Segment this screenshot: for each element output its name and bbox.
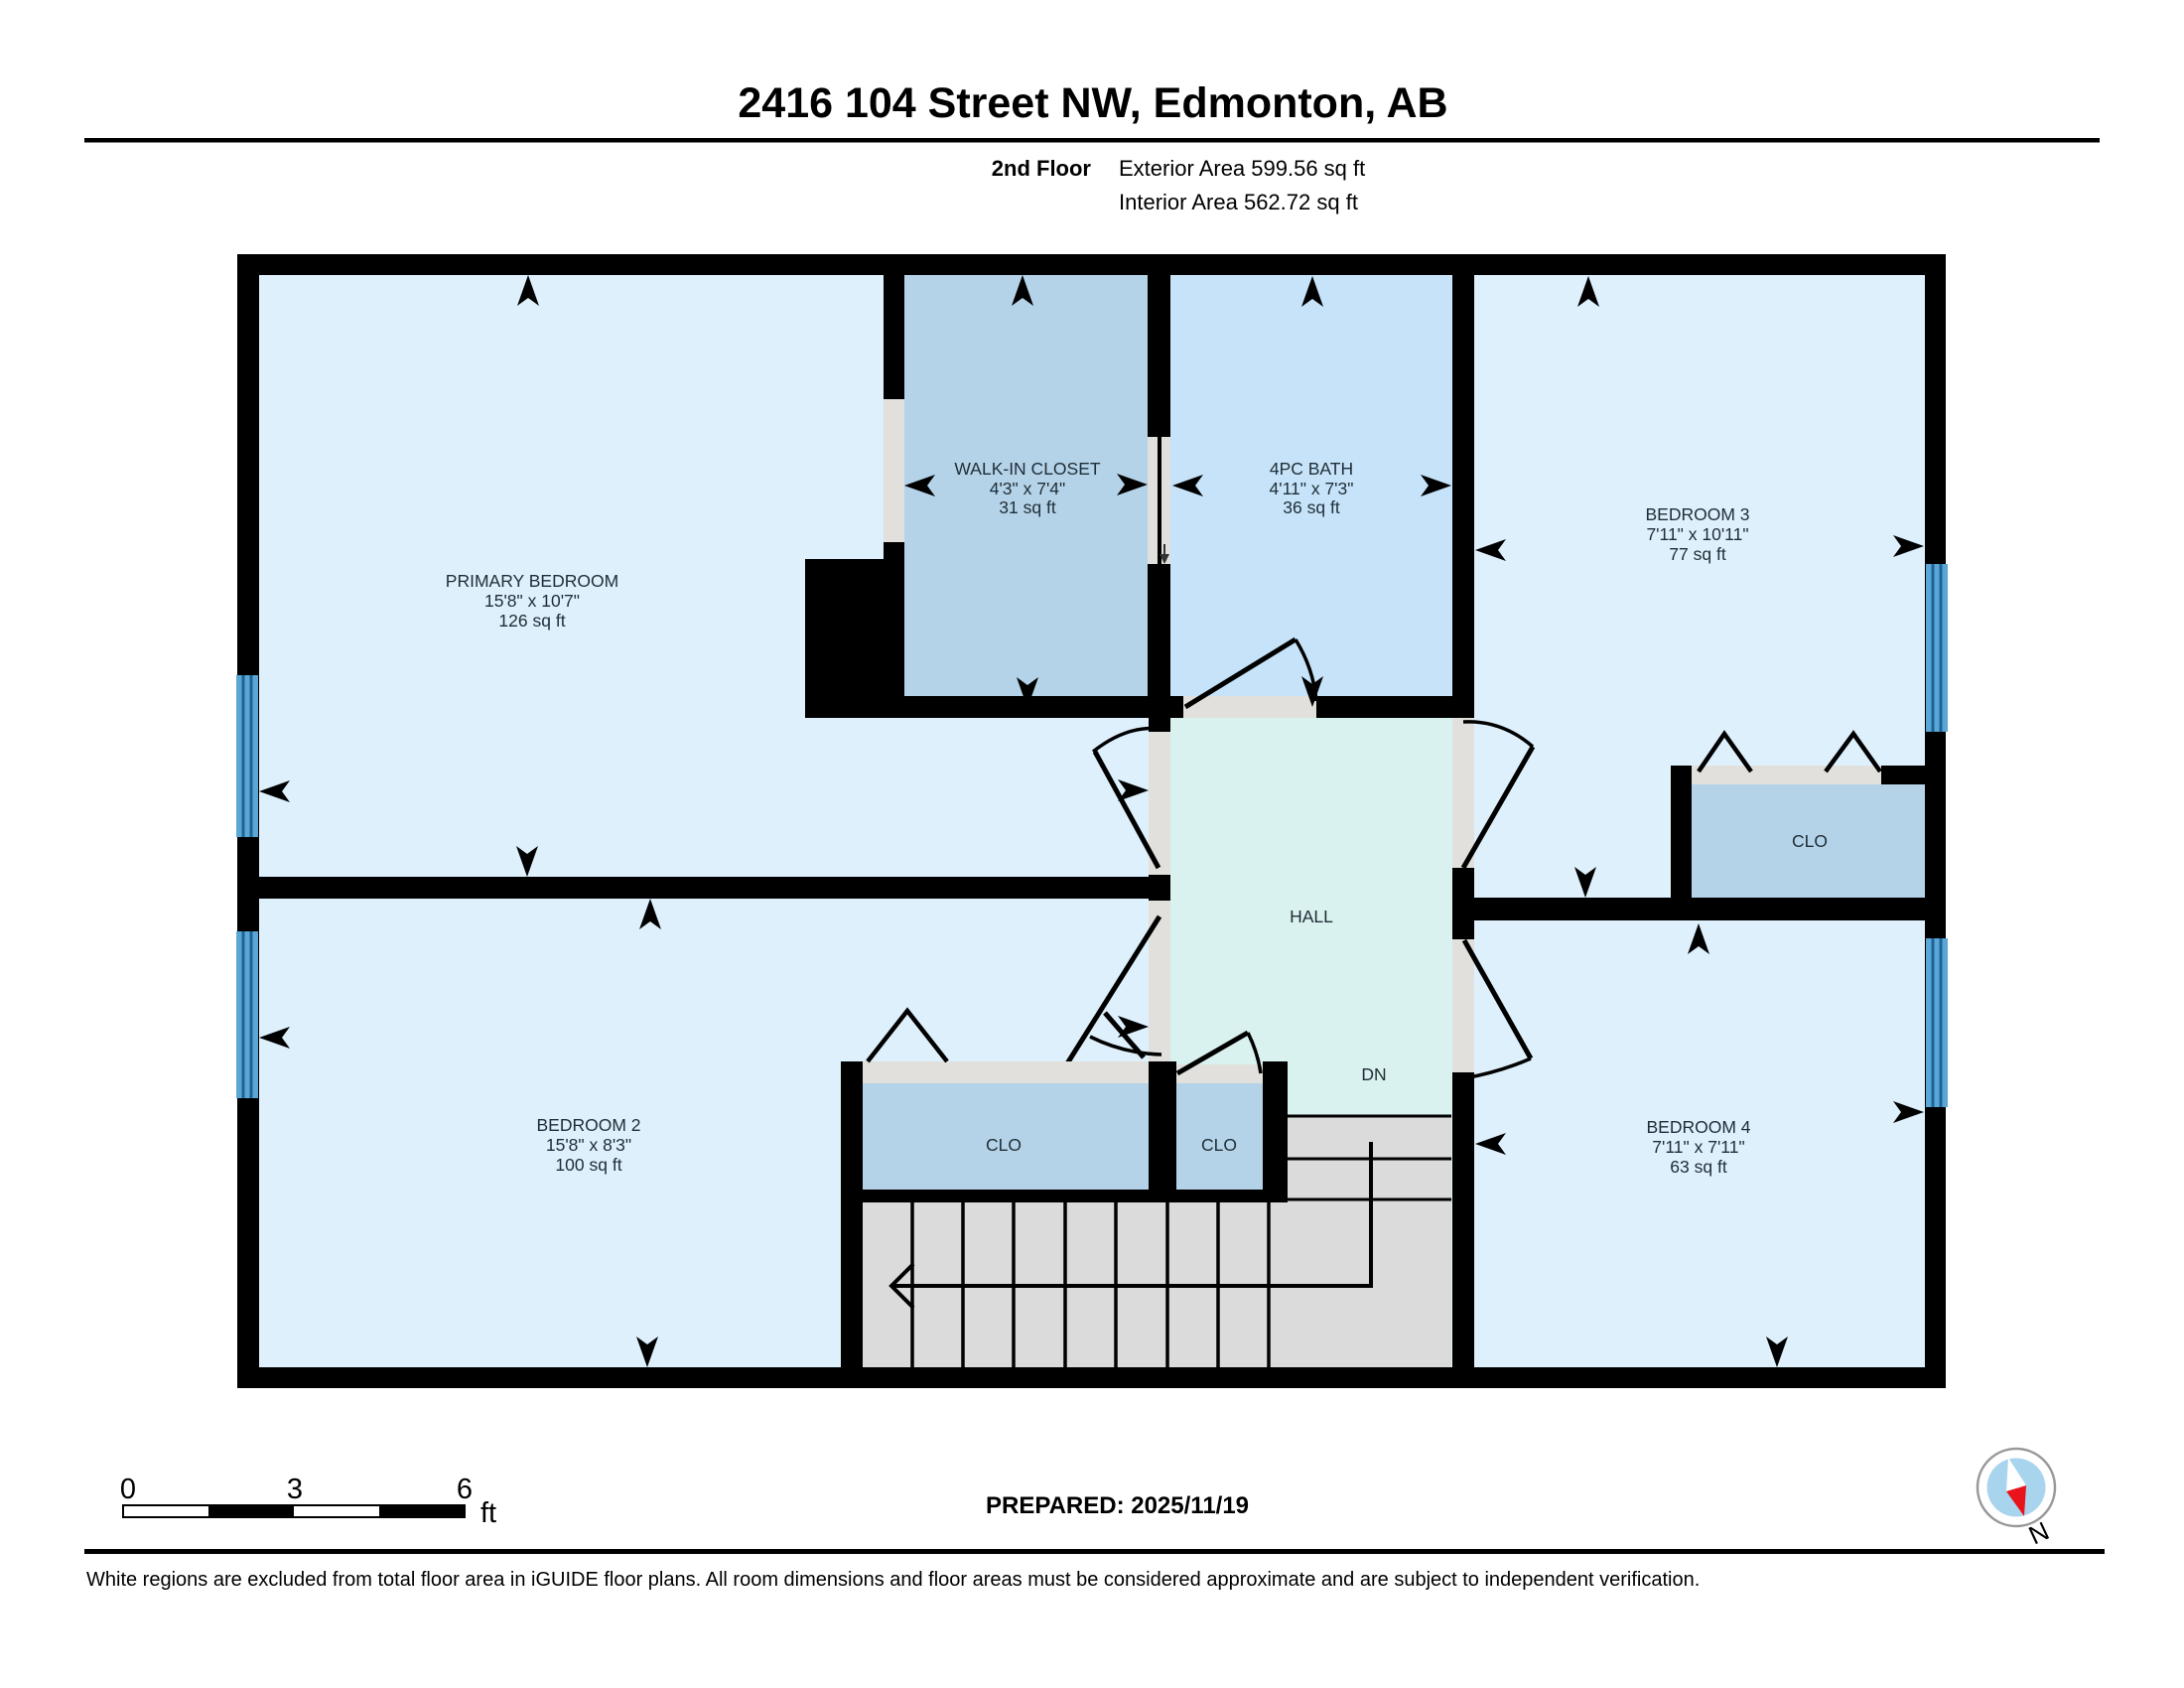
svg-text:36 sq ft: 36 sq ft (1283, 497, 1340, 517)
svg-text:4'11" x 7'3": 4'11" x 7'3" (1270, 479, 1354, 498)
svg-text:7'11" x 7'11": 7'11" x 7'11" (1652, 1137, 1744, 1157)
svg-text:4'3" x 7'4": 4'3" x 7'4" (990, 479, 1066, 498)
svg-text:CLO: CLO (986, 1135, 1022, 1155)
svg-text:2nd Floor: 2nd Floor (992, 156, 1092, 181)
svg-text:HALL: HALL (1290, 907, 1333, 926)
svg-text:ft: ft (480, 1497, 496, 1529)
svg-text:DN: DN (1361, 1064, 1386, 1084)
svg-text:BEDROOM 3: BEDROOM 3 (1645, 504, 1749, 524)
svg-text:WALK-IN CLOSET: WALK-IN CLOSET (954, 459, 1100, 479)
svg-text:Interior Area 562.72 sq ft: Interior Area 562.72 sq ft (1119, 190, 1358, 214)
svg-text:7'11" x 10'11": 7'11" x 10'11" (1646, 524, 1748, 544)
svg-text:BEDROOM 4: BEDROOM 4 (1646, 1117, 1750, 1137)
svg-text:2416 104 Street NW, Edmonton,: 2416 104 Street NW, Edmonton, AB (738, 79, 1447, 127)
svg-text:126 sq ft: 126 sq ft (498, 611, 565, 631)
svg-text:White regions are excluded fro: White regions are excluded from total fl… (86, 1569, 1700, 1591)
svg-text:31 sq ft: 31 sq ft (999, 497, 1056, 517)
svg-text:PRIMARY BEDROOM: PRIMARY BEDROOM (446, 571, 618, 591)
svg-text:6: 6 (457, 1474, 473, 1505)
svg-text:CLO: CLO (1792, 831, 1828, 851)
svg-text:CLO: CLO (1201, 1135, 1237, 1155)
svg-text:77 sq ft: 77 sq ft (1669, 544, 1726, 564)
svg-text:Exterior Area 599.56 sq ft: Exterior Area 599.56 sq ft (1119, 156, 1365, 181)
svg-text:3: 3 (287, 1474, 303, 1505)
svg-text:100 sq ft: 100 sq ft (555, 1155, 621, 1175)
svg-text:0: 0 (120, 1474, 136, 1505)
svg-text:63 sq ft: 63 sq ft (1670, 1157, 1727, 1177)
svg-text:PREPARED: 2025/11/19: PREPARED: 2025/11/19 (986, 1492, 1249, 1519)
svg-text:15'8" x 8'3": 15'8" x 8'3" (546, 1135, 631, 1155)
svg-text:15'8" x 10'7": 15'8" x 10'7" (484, 591, 580, 611)
svg-text:4PC BATH: 4PC BATH (1270, 459, 1353, 479)
svg-text:BEDROOM 2: BEDROOM 2 (536, 1115, 640, 1135)
